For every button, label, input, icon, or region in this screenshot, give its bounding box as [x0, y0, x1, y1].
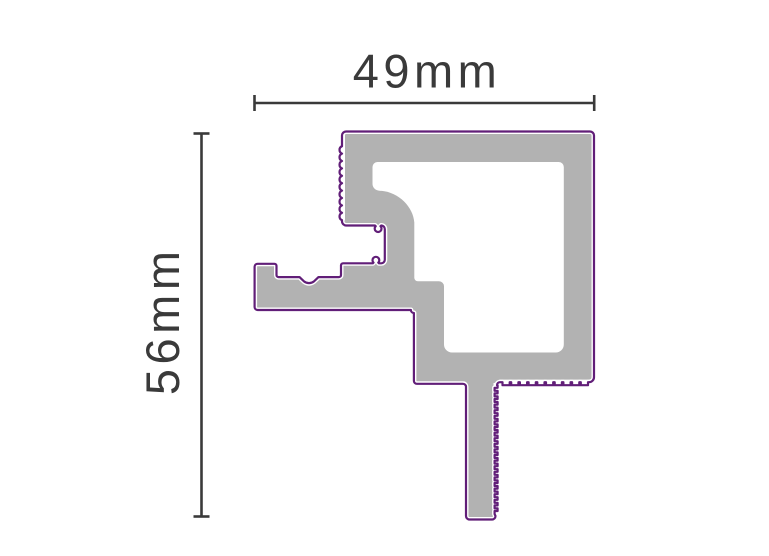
svg-text:56mm: 56mm: [136, 247, 189, 396]
svg-text:49mm: 49mm: [353, 45, 502, 98]
